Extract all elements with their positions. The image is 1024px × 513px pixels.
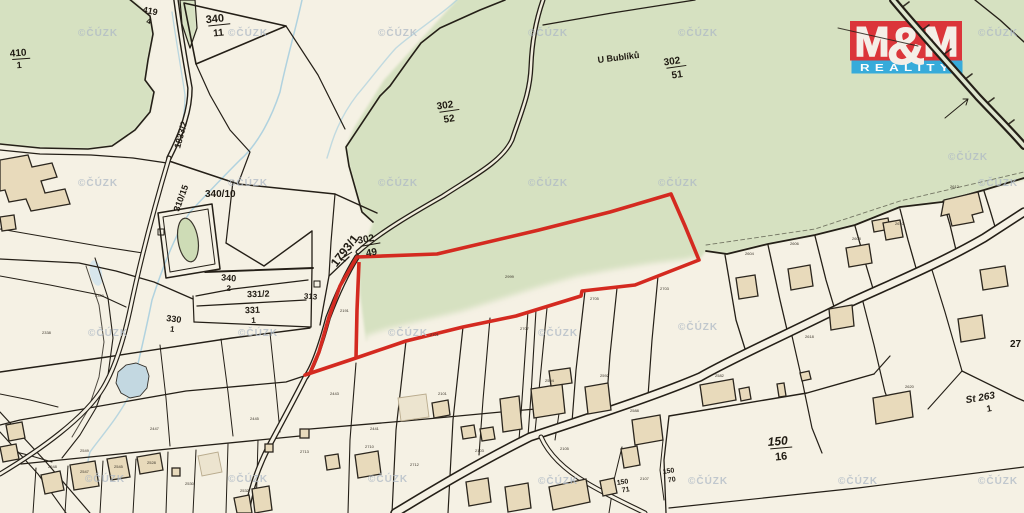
svg-text:©ČÚZK: ©ČÚZK <box>78 176 118 189</box>
svg-text:©ČÚZK: ©ČÚZK <box>538 474 578 487</box>
svg-text:©ČÚZK: ©ČÚZK <box>228 472 268 485</box>
svg-text:2101: 2101 <box>438 391 448 396</box>
svg-text:2103: 2103 <box>475 448 485 453</box>
svg-text:2618: 2618 <box>805 334 815 339</box>
svg-text:313: 313 <box>304 292 318 302</box>
svg-text:©ČÚZK: ©ČÚZK <box>378 176 418 189</box>
svg-text:410: 410 <box>9 48 27 60</box>
svg-text:2608: 2608 <box>852 236 862 241</box>
svg-text:2592: 2592 <box>600 373 610 378</box>
svg-text:2105: 2105 <box>560 446 570 451</box>
svg-text:2338: 2338 <box>42 330 52 335</box>
svg-text:©ČÚZK: ©ČÚZK <box>388 326 428 339</box>
svg-text:2582: 2582 <box>715 373 725 378</box>
svg-text:M: M <box>855 18 890 65</box>
svg-text:2604: 2604 <box>745 251 755 256</box>
svg-text:150: 150 <box>767 433 788 449</box>
svg-text:©ČÚZK: ©ČÚZK <box>978 26 1018 39</box>
svg-text:©ČÚZK: ©ČÚZK <box>378 26 418 39</box>
svg-text:2107: 2107 <box>640 476 650 481</box>
svg-text:©ČÚZK: ©ČÚZK <box>228 26 268 39</box>
svg-text:52: 52 <box>443 113 456 126</box>
svg-text:©ČÚZK: ©ČÚZK <box>978 474 1018 487</box>
svg-text:©ČÚZK: ©ČÚZK <box>688 474 728 487</box>
svg-text:2594: 2594 <box>545 378 555 383</box>
svg-text:2588: 2588 <box>630 408 640 413</box>
svg-text:2999: 2999 <box>505 274 515 279</box>
svg-text:2549: 2549 <box>80 448 90 453</box>
svg-text:2528: 2528 <box>147 460 157 465</box>
svg-text:51: 51 <box>671 69 684 82</box>
svg-text:2606: 2606 <box>790 241 800 246</box>
svg-text:71: 71 <box>621 486 630 494</box>
svg-text:©ČÚZK: ©ČÚZK <box>838 474 878 487</box>
svg-text:2191: 2191 <box>340 308 350 313</box>
svg-text:2705: 2705 <box>590 296 600 301</box>
svg-text:2548: 2548 <box>48 464 58 469</box>
svg-text:©ČÚZK: ©ČÚZK <box>88 326 128 339</box>
svg-text:340: 340 <box>221 272 237 283</box>
svg-text:2545: 2545 <box>114 464 124 469</box>
svg-text:2447: 2447 <box>150 426 160 431</box>
svg-text:2713: 2713 <box>300 449 310 454</box>
svg-text:2710: 2710 <box>365 444 375 449</box>
svg-text:2701: 2701 <box>430 332 440 337</box>
svg-text:2441: 2441 <box>370 426 380 431</box>
svg-text:11: 11 <box>213 27 225 39</box>
svg-text:©ČÚZK: ©ČÚZK <box>368 472 408 485</box>
svg-text:©ČÚZK: ©ČÚZK <box>678 320 718 333</box>
svg-text:2707: 2707 <box>520 326 530 331</box>
svg-text:©ČÚZK: ©ČÚZK <box>528 176 568 189</box>
svg-text:©ČÚZK: ©ČÚZK <box>948 150 988 163</box>
svg-text:2532: 2532 <box>240 488 250 493</box>
svg-text:©ČÚZK: ©ČÚZK <box>538 326 578 339</box>
svg-text:2620: 2620 <box>905 384 915 389</box>
svg-text:27: 27 <box>1010 339 1022 350</box>
svg-text:2612: 2612 <box>950 184 960 189</box>
svg-text:340/10: 340/10 <box>205 189 236 200</box>
svg-text:2530: 2530 <box>185 481 195 486</box>
svg-text:331: 331 <box>245 305 260 316</box>
svg-text:©ČÚZK: ©ČÚZK <box>78 26 118 39</box>
svg-text:2340: 2340 <box>95 293 105 298</box>
svg-text:©ČÚZK: ©ČÚZK <box>658 176 698 189</box>
svg-text:331/2: 331/2 <box>247 289 270 300</box>
svg-text:2610: 2610 <box>895 221 905 226</box>
svg-text:2712: 2712 <box>410 462 420 467</box>
svg-text:©ČÚZK: ©ČÚZK <box>228 176 268 189</box>
svg-text:©ČÚZK: ©ČÚZK <box>238 326 278 339</box>
svg-text:1: 1 <box>16 60 22 70</box>
svg-text:©ČÚZK: ©ČÚZK <box>85 472 125 485</box>
svg-text:2445: 2445 <box>250 416 260 421</box>
svg-text:©ČÚZK: ©ČÚZK <box>678 26 718 39</box>
svg-text:70: 70 <box>668 476 677 484</box>
svg-text:330: 330 <box>166 313 182 325</box>
svg-text:16: 16 <box>775 450 788 463</box>
svg-text:©ČÚZK: ©ČÚZK <box>978 176 1018 189</box>
svg-text:2703: 2703 <box>660 286 670 291</box>
svg-text:2443: 2443 <box>330 391 340 396</box>
svg-text:©ČÚZK: ©ČÚZK <box>528 26 568 39</box>
